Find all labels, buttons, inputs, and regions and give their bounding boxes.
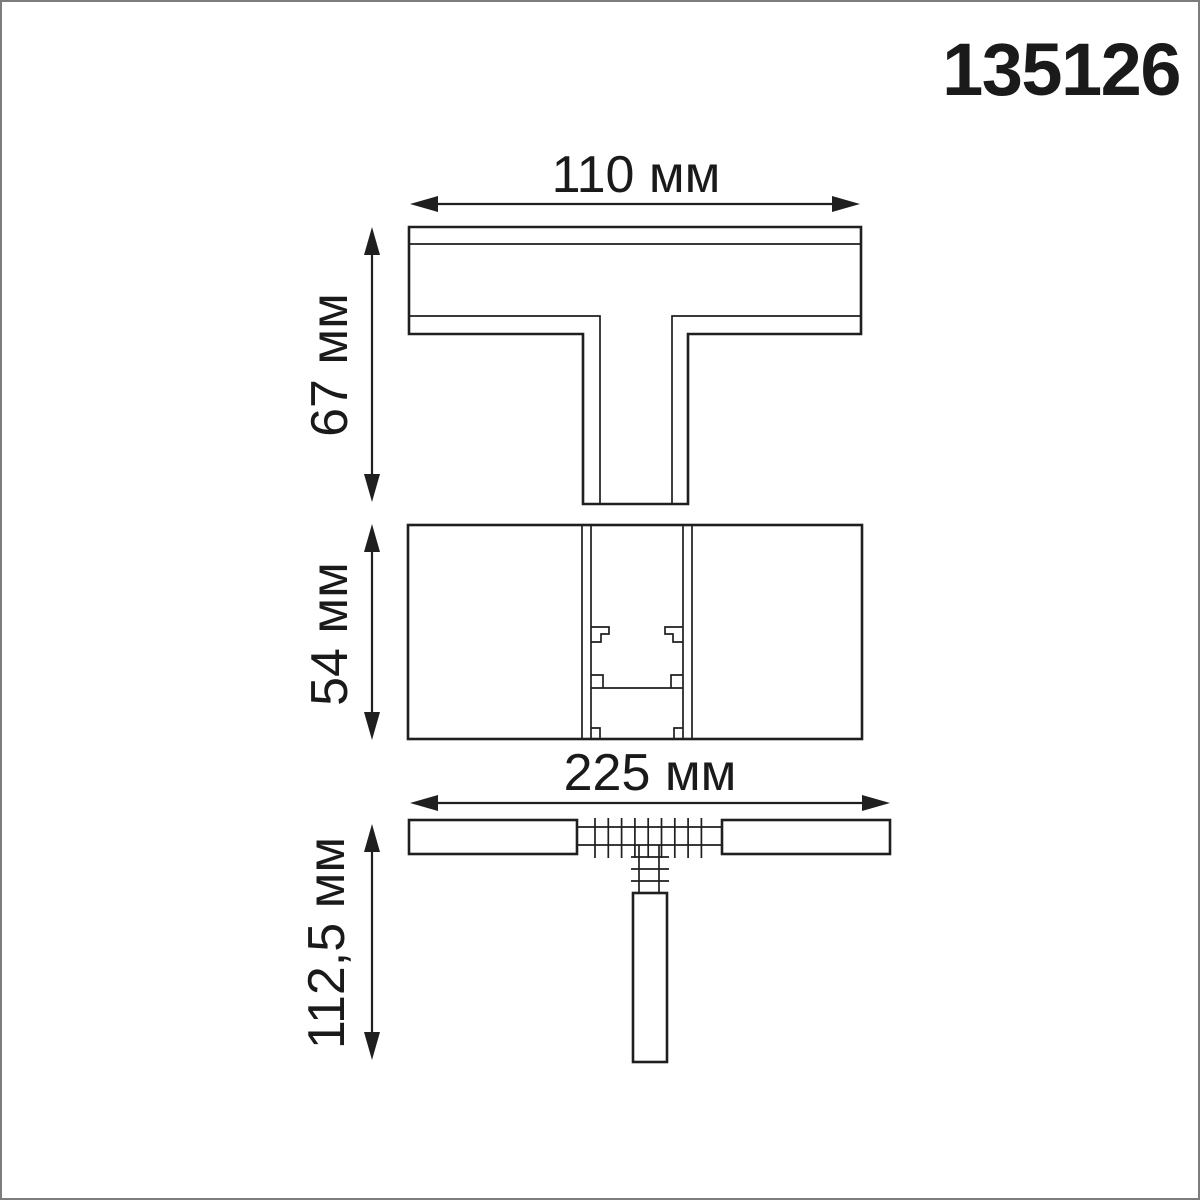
arrowhead-right-icon [832, 196, 860, 212]
side-view [409, 818, 890, 1062]
dim-side-height: 112,5 мм [298, 824, 380, 1060]
product-code: 135126 [942, 28, 1180, 111]
side-right-arm [722, 820, 890, 854]
arrowhead-down-icon [364, 712, 380, 740]
arrowhead-left-icon [410, 795, 438, 811]
front-body-outline [408, 525, 862, 739]
dim-top-width: 110 мм [410, 146, 860, 212]
dim-label-front-height: 54 мм [301, 562, 359, 706]
front-channel-walls [582, 525, 692, 739]
top-view [409, 227, 861, 504]
dim-side-width: 225 мм [410, 744, 890, 811]
arrowhead-right-icon [862, 795, 890, 811]
dimension-drawing: 135126 110 мм 67 мм [2, 2, 1198, 1198]
side-horizontal-joint [577, 827, 722, 845]
front-view [408, 525, 862, 739]
arrowhead-down-icon [364, 474, 380, 502]
t-profile-inner-lines [409, 244, 861, 504]
front-contact-blocks [591, 675, 683, 688]
front-latch-clips [591, 627, 683, 642]
arrowhead-left-icon [410, 196, 438, 212]
side-stem [633, 893, 667, 1062]
arrowhead-down-icon [364, 1032, 380, 1060]
side-horizontal-joint-ribs [595, 818, 701, 858]
side-left-arm [409, 820, 577, 854]
arrowhead-up-icon [364, 227, 380, 255]
dim-top-height: 67 мм [301, 227, 380, 502]
dim-front-height: 54 мм [301, 524, 380, 740]
dim-label-side-width: 225 мм [564, 744, 737, 802]
side-vertical-joint-ribs [631, 857, 669, 881]
arrowhead-up-icon [364, 524, 380, 552]
dim-label-top-width: 110 мм [552, 146, 721, 204]
t-profile-outline [409, 227, 861, 504]
arrowhead-up-icon [364, 824, 380, 852]
front-bottom-lugs [591, 728, 683, 739]
dim-label-side-height: 112,5 мм [298, 837, 356, 1049]
dim-label-top-height: 67 мм [301, 293, 359, 437]
drawing-canvas: 135126 110 мм 67 мм [0, 0, 1200, 1200]
